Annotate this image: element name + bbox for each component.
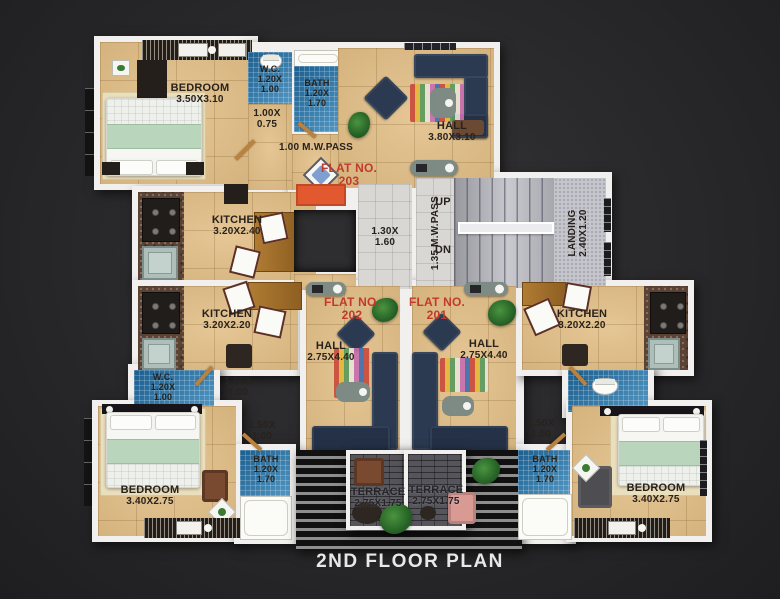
pass-150-label-a: 1.50X 1.00	[224, 376, 251, 398]
wardrobe-shelf	[176, 521, 202, 535]
wardrobe-shelf	[218, 43, 246, 57]
hall-202-label: HALL 2.75X4.40	[307, 340, 354, 364]
stair-rail	[458, 222, 554, 234]
landing-window	[604, 198, 611, 232]
sofa-hall-201-lower	[430, 426, 508, 452]
terrace-202-label: TERRACE 2.75X1.75	[351, 486, 406, 510]
lobby-130-160-label: 1.30X 1.60	[371, 226, 398, 248]
bath-201-label: BATH 1.20X 1.70	[532, 454, 557, 484]
kitchen-202-stool	[226, 344, 252, 368]
entry-202-console	[306, 282, 346, 296]
dining-table-202	[248, 282, 302, 310]
bathtub-203	[294, 50, 342, 67]
landing-label: LANDING 2.40X1.20	[567, 191, 593, 275]
kitchen-203-cabinet	[224, 184, 248, 204]
bedroom-202-label: BEDROOM 3.40X2.75	[121, 484, 180, 508]
bedroom-202-armchair	[202, 470, 228, 502]
bathtub-202	[240, 496, 292, 540]
hall-203-label: HALL 3.80X3.10	[428, 120, 475, 144]
kitchen-sink	[648, 338, 680, 370]
nightstand	[102, 162, 120, 175]
kitchen-203-label: KITCHEN 3.20X2.40	[212, 214, 262, 238]
wardrobe-knob	[208, 46, 216, 54]
flat-201-label: FLAT NO. 201	[409, 296, 465, 323]
hall-202-tv-console	[336, 382, 370, 402]
wardrobe-knob	[638, 524, 646, 532]
kitchen-sink	[142, 338, 176, 370]
hall-201-tv-console	[442, 396, 474, 416]
floor-plan-canvas: BEDROOM 3.50X3.10 W.C. 1.20X 1.00 BATH 1…	[0, 0, 780, 599]
lift-shaft	[294, 210, 356, 272]
bath-202-label: BATH 1.20X 1.70	[253, 454, 278, 484]
bedroom-201-label: BEDROOM 3.40X2.75	[627, 482, 686, 506]
wardrobe-shelf	[608, 521, 636, 535]
wardrobe-bedroom-203	[142, 40, 252, 60]
terrace-202-armchair	[354, 458, 384, 486]
nightstand	[186, 162, 204, 175]
pass-100-075-label: 1.00X 0.75	[253, 108, 280, 130]
toilet	[592, 378, 618, 395]
hall-203-coffee-table	[430, 88, 456, 118]
mwpass-100-label: 1.00 M.W.PASS	[279, 142, 353, 153]
kitchen-201-stool	[562, 344, 588, 366]
sofa-hall-203-top	[414, 54, 488, 78]
stove-burners	[142, 198, 180, 242]
hall-201-label: HALL 2.75X4.40	[460, 338, 507, 362]
wardrobe-bedroom-202	[144, 518, 240, 538]
bedroom-203-label: BEDROOM 3.50X3.10	[171, 82, 230, 106]
wardrobe-knob	[204, 524, 212, 532]
bedroom-203-wall-art	[112, 60, 130, 76]
flat-202-label: FLAT NO. 202	[324, 296, 380, 323]
sofa-hall-202-lower	[312, 426, 390, 452]
bath-203-label: BATH 1.20X 1.70	[304, 78, 329, 108]
mwpass-135-label: 1.35 M.W.PASS	[425, 173, 439, 293]
bathtub-201	[518, 494, 572, 540]
dining-chair	[253, 305, 286, 338]
terrace-201-stool	[420, 506, 436, 520]
hall-203-window	[404, 43, 456, 50]
wardrobe-bedroom-201	[574, 518, 670, 538]
chajja-left-top	[85, 88, 94, 176]
double-bed-202	[106, 412, 200, 488]
plan-title: 2ND FLOOR PLAN	[270, 551, 550, 573]
landing-window	[604, 242, 611, 276]
kitchen-sink	[142, 246, 178, 280]
lift-door	[296, 184, 346, 206]
wc-202-label: W.C. 1.20X 1.00	[151, 372, 176, 402]
stove-burners	[650, 292, 686, 334]
bedroom-201-window	[700, 440, 707, 496]
wardrobe-shelf	[178, 43, 208, 57]
entry-201-console	[464, 282, 508, 296]
hall-201-rug	[440, 358, 488, 392]
wc-203-label: W.C. 1.20X 1.00	[258, 64, 283, 94]
terrace-201-label: TERRACE 2.75X1.75	[409, 484, 464, 508]
kitchen-202-label: KITCHEN 3.20X2.20	[202, 308, 252, 332]
kitchen-201-label: KITCHEN 3.20X2.20	[557, 308, 607, 332]
pass-150-label-c: 1.50X 1.00	[527, 418, 554, 440]
stove-burners	[142, 292, 180, 334]
double-bed-201	[618, 414, 704, 486]
